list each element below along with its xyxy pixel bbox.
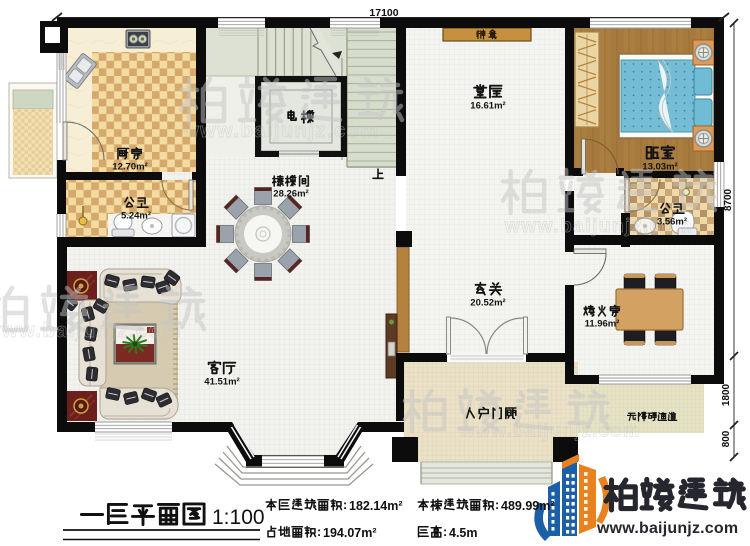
svg-text:16.61m²: 16.61m² [470,101,505,112]
svg-text:17100: 17100 [369,7,398,19]
svg-text:13.03m²: 13.03m² [642,162,677,173]
svg-text:www.baijunjz.com: www.baijunjz.com [596,520,738,537]
svg-text:182.14m²: 182.14m² [349,499,403,513]
svg-text:41.51m²: 41.51m² [204,377,239,388]
svg-text:8700: 8700 [723,188,734,211]
svg-text:28.26m²: 28.26m² [273,189,308,200]
svg-text:194.07m²: 194.07m² [323,526,377,540]
svg-text:489.99m²: 489.99m² [501,499,555,513]
svg-text::: : [343,498,347,512]
svg-text:800: 800 [721,430,732,447]
svg-text::: : [317,525,321,539]
svg-text:5.24m²: 5.24m² [121,211,151,222]
svg-text:www.baijunjz.com: www.baijunjz.com [0,320,182,342]
svg-text:1800: 1800 [721,383,732,406]
svg-text:12.70m²: 12.70m² [112,162,147,173]
svg-text:3.56m²: 3.56m² [657,217,687,228]
svg-text:www.baijunjz.com: www.baijunjz.com [182,120,380,142]
svg-text:1:100: 1:100 [212,506,265,529]
svg-text:4.5m: 4.5m [449,526,478,540]
svg-text::: : [443,525,447,539]
svg-text::: : [495,498,499,512]
svg-text:20.52m²: 20.52m² [470,298,505,309]
svg-text:11.96m²: 11.96m² [585,319,620,330]
svg-text:www.baijunjz.com: www.baijunjz.com [459,419,641,440]
